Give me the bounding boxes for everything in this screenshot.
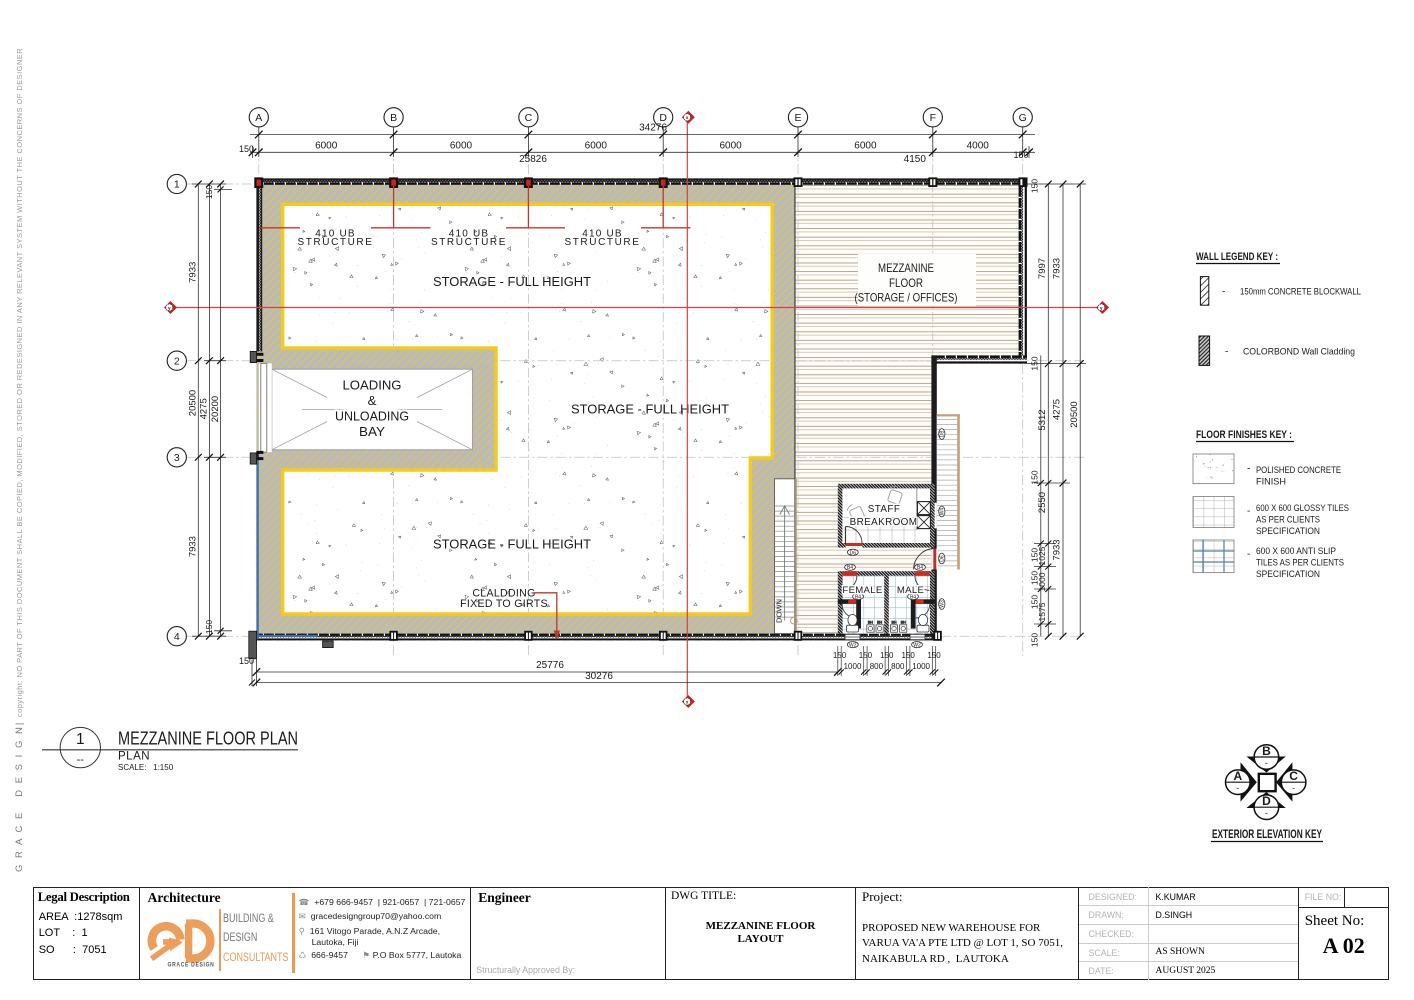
svg-text:y: y bbox=[168, 305, 171, 310]
svg-text:4275: 4275 bbox=[1052, 399, 1063, 420]
svg-text:600 X 600 GLOSSY TILES: 600 X 600 GLOSSY TILES bbox=[1256, 503, 1349, 514]
svg-text:4: 4 bbox=[174, 631, 180, 643]
svg-text:C: C bbox=[525, 112, 533, 124]
svg-text:BAY: BAY bbox=[359, 424, 385, 439]
svg-text:W2: W2 bbox=[849, 643, 857, 649]
svg-text:5312: 5312 bbox=[1037, 409, 1048, 430]
svg-text:4150: 4150 bbox=[904, 154, 927, 165]
svg-text:A: A bbox=[1233, 769, 1242, 783]
svg-text:150: 150 bbox=[1029, 633, 1039, 647]
svg-text:2550: 2550 bbox=[1037, 492, 1048, 513]
svg-text:F: F bbox=[930, 112, 936, 124]
svg-text:FEMALE: FEMALE bbox=[842, 585, 882, 596]
svg-text:-: - bbox=[1265, 758, 1268, 768]
svg-text:6000: 6000 bbox=[315, 141, 338, 152]
svg-text:FINISH: FINISH bbox=[1256, 477, 1286, 488]
svg-text:-: - bbox=[1222, 287, 1225, 298]
svg-text:TILES AS PER CLIENTS: TILES AS PER CLIENTS bbox=[1256, 558, 1344, 569]
svg-text:30276: 30276 bbox=[585, 671, 613, 682]
svg-text:FLOOR: FLOOR bbox=[889, 277, 923, 290]
svg-text:B: B bbox=[1262, 744, 1271, 758]
svg-text:B: B bbox=[390, 112, 397, 124]
svg-text:AS PER CLIENTS: AS PER CLIENTS bbox=[1256, 515, 1320, 526]
svg-text:STAFF: STAFF bbox=[868, 504, 901, 515]
svg-text:G: G bbox=[1019, 112, 1027, 124]
svg-text:1000: 1000 bbox=[1037, 572, 1047, 591]
svg-text:GRACE DESIGN: GRACE DESIGN bbox=[167, 961, 214, 968]
svg-text:1: 1 bbox=[174, 179, 180, 191]
svg-text:D6: D6 bbox=[940, 555, 946, 562]
svg-text:B4: B4 bbox=[847, 565, 853, 571]
svg-text:&: & bbox=[368, 393, 377, 408]
svg-text:7997: 7997 bbox=[1037, 258, 1048, 279]
svg-text:150: 150 bbox=[859, 651, 873, 660]
svg-text:STORAGE - FULL HEIGHT: STORAGE - FULL HEIGHT bbox=[433, 274, 591, 289]
svg-text:POLISHED CONCRETE: POLISHED CONCRETE bbox=[1256, 465, 1341, 476]
svg-text:B4: B4 bbox=[917, 565, 923, 571]
svg-text:MEZZANINE: MEZZANINE bbox=[878, 262, 934, 275]
svg-text:BH: BH bbox=[901, 620, 906, 624]
svg-text:C: C bbox=[1289, 769, 1298, 783]
svg-text:BH: BH bbox=[892, 620, 897, 624]
svg-text:BH: BH bbox=[877, 620, 882, 624]
svg-text:150: 150 bbox=[1029, 470, 1039, 484]
svg-text:20500: 20500 bbox=[1069, 401, 1080, 427]
svg-text:WALL LEGEND KEY :: WALL LEGEND KEY : bbox=[1196, 251, 1278, 263]
svg-text:1025: 1025 bbox=[1037, 546, 1047, 565]
svg-text:x: x bbox=[686, 115, 689, 120]
svg-text:W2: W2 bbox=[913, 643, 921, 649]
svg-text:150: 150 bbox=[204, 620, 214, 634]
svg-text:6000: 6000 bbox=[719, 141, 742, 152]
svg-text:FLOOR FINISHES KEY :: FLOOR FINISHES KEY : bbox=[1196, 429, 1292, 441]
svg-text:150: 150 bbox=[239, 656, 254, 666]
svg-text:--: -- bbox=[77, 754, 85, 766]
svg-text:UNLOADING: UNLOADING bbox=[335, 409, 409, 424]
svg-text:6000: 6000 bbox=[854, 141, 877, 152]
svg-text:FIXED TO GIRTS: FIXED TO GIRTS bbox=[460, 598, 548, 610]
svg-text:-: - bbox=[1247, 549, 1250, 560]
svg-text:E: E bbox=[794, 112, 801, 124]
svg-text:-: - bbox=[1292, 783, 1295, 793]
svg-text:150: 150 bbox=[204, 185, 214, 199]
svg-text:25826: 25826 bbox=[519, 154, 547, 165]
svg-text:D: D bbox=[1262, 794, 1271, 808]
svg-text:150: 150 bbox=[1029, 356, 1039, 370]
svg-text:D6: D6 bbox=[850, 550, 857, 556]
svg-text:y: y bbox=[1100, 305, 1103, 310]
svg-text:34276: 34276 bbox=[639, 123, 667, 134]
svg-text:7933: 7933 bbox=[188, 262, 199, 283]
svg-text:7933: 7933 bbox=[1052, 539, 1063, 560]
svg-text:-: - bbox=[1265, 808, 1268, 818]
svg-text:6000: 6000 bbox=[450, 141, 473, 152]
svg-text:150: 150 bbox=[833, 651, 847, 660]
svg-text:SCALE: 1:150: SCALE: 1:150 bbox=[118, 763, 174, 772]
svg-text:150: 150 bbox=[239, 144, 254, 154]
svg-text:EXTERIOR ELEVATION KEY: EXTERIOR ELEVATION KEY bbox=[1212, 829, 1322, 841]
svg-text:W4: W4 bbox=[940, 508, 946, 516]
svg-text:150mm CONCRETE BLOCKWALL: 150mm CONCRETE BLOCKWALL bbox=[1240, 287, 1361, 298]
svg-text:STRUCTURE: STRUCTURE bbox=[297, 237, 373, 248]
svg-text:STRUCTURE: STRUCTURE bbox=[431, 237, 507, 248]
svg-text:x: x bbox=[686, 699, 689, 704]
svg-text:150: 150 bbox=[880, 651, 894, 660]
svg-text:STRUCTURE: STRUCTURE bbox=[564, 237, 640, 248]
svg-text:2: 2 bbox=[174, 355, 180, 367]
svg-text:MEZZANINE FLOOR PLAN: MEZZANINE FLOOR PLAN bbox=[118, 729, 298, 749]
svg-text:150: 150 bbox=[1029, 179, 1039, 193]
svg-text:BH: BH bbox=[868, 620, 873, 624]
svg-text:-: - bbox=[1236, 783, 1239, 793]
svg-text:150: 150 bbox=[1013, 150, 1028, 160]
svg-text:PLAN: PLAN bbox=[118, 751, 150, 763]
svg-text:3: 3 bbox=[174, 452, 180, 464]
svg-text:STORAGE - FULL HEIGHT: STORAGE - FULL HEIGHT bbox=[433, 537, 591, 552]
svg-text:4275: 4275 bbox=[199, 398, 210, 419]
svg-text:(STORAGE / OFFICES): (STORAGE / OFFICES) bbox=[855, 292, 958, 305]
svg-text:COLORBOND Wall Cladding: COLORBOND Wall Cladding bbox=[1243, 347, 1355, 358]
svg-text:LOADING: LOADING bbox=[343, 378, 402, 393]
svg-text:600 X 600 ANTI SLIP: 600 X 600 ANTI SLIP bbox=[1256, 546, 1336, 557]
svg-text:DOWN: DOWN bbox=[775, 599, 784, 623]
svg-text:D8: D8 bbox=[940, 431, 946, 438]
svg-text:7933: 7933 bbox=[1052, 258, 1063, 279]
svg-text:-: - bbox=[1247, 506, 1250, 517]
svg-text:6000: 6000 bbox=[585, 141, 608, 152]
svg-text:SPECIFICATION: SPECIFICATION bbox=[1256, 526, 1320, 537]
svg-text:25776: 25776 bbox=[536, 660, 564, 671]
svg-text:20500: 20500 bbox=[188, 390, 199, 416]
svg-text:1000: 1000 bbox=[912, 662, 930, 671]
svg-text:STORAGE - FULL HEIGHT: STORAGE - FULL HEIGHT bbox=[571, 402, 729, 417]
svg-text:4000: 4000 bbox=[967, 141, 990, 152]
svg-text:A: A bbox=[255, 112, 262, 124]
svg-text:1000: 1000 bbox=[844, 662, 862, 671]
svg-text:BREAKROOM: BREAKROOM bbox=[850, 517, 918, 528]
svg-text:20200: 20200 bbox=[210, 396, 221, 422]
svg-text:1575: 1575 bbox=[1037, 602, 1047, 621]
svg-text:7933: 7933 bbox=[188, 536, 199, 557]
svg-text:-: - bbox=[1247, 464, 1250, 475]
svg-text:W3: W3 bbox=[940, 600, 946, 608]
svg-text:MALE: MALE bbox=[897, 585, 924, 596]
svg-text:800: 800 bbox=[891, 662, 905, 671]
svg-text:150: 150 bbox=[902, 651, 916, 660]
svg-text:SPECIFICATION: SPECIFICATION bbox=[1256, 569, 1320, 580]
svg-text:800: 800 bbox=[870, 662, 884, 671]
svg-text:1: 1 bbox=[76, 731, 85, 748]
svg-text:-: - bbox=[1225, 347, 1228, 358]
svg-text:150: 150 bbox=[927, 651, 941, 660]
